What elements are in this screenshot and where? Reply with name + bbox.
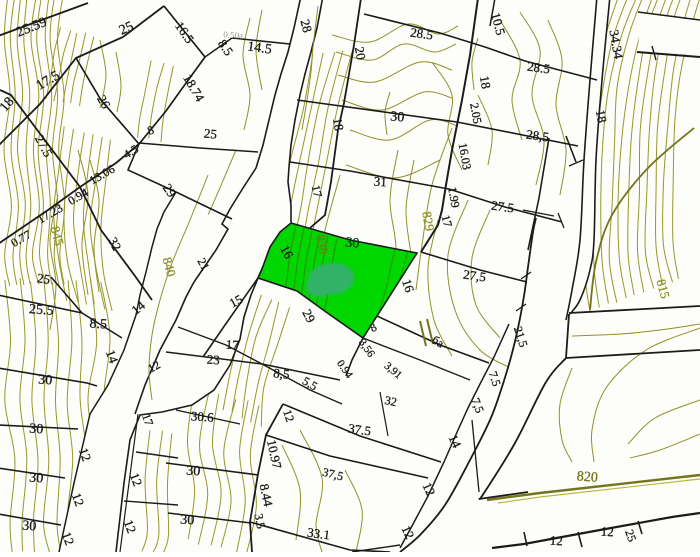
svg-text:27,5: 27,5	[462, 267, 487, 285]
svg-text:27.5: 27.5	[490, 198, 515, 216]
svg-text:18: 18	[477, 75, 494, 90]
svg-text:18: 18	[593, 109, 610, 124]
svg-text:25: 25	[36, 270, 51, 287]
svg-text:31: 31	[373, 174, 387, 190]
svg-text:23: 23	[206, 352, 220, 368]
svg-text:820: 820	[576, 469, 598, 486]
svg-text:18: 18	[330, 117, 347, 132]
svg-text:33.1: 33.1	[306, 525, 331, 543]
svg-text:30: 30	[29, 422, 44, 438]
svg-text:20: 20	[352, 46, 369, 61]
svg-text:30: 30	[345, 235, 360, 251]
svg-text:30: 30	[390, 109, 405, 125]
svg-text:28.5: 28.5	[526, 59, 551, 77]
svg-text:30: 30	[38, 373, 53, 389]
svg-text:8.5: 8.5	[89, 316, 108, 332]
svg-text:37.5: 37.5	[347, 421, 372, 439]
svg-text:30: 30	[29, 471, 44, 487]
svg-text:30: 30	[180, 513, 195, 529]
svg-text:28.5: 28.5	[409, 25, 434, 43]
svg-text:30: 30	[186, 464, 201, 480]
svg-text:17: 17	[225, 337, 240, 353]
svg-text:30: 30	[22, 519, 37, 535]
svg-text:12: 12	[600, 524, 614, 540]
svg-text:25: 25	[203, 125, 217, 141]
svg-text:28,5: 28,5	[525, 127, 550, 145]
svg-text:25.5: 25.5	[29, 302, 54, 319]
svg-text:8,5: 8,5	[273, 365, 291, 382]
svg-text:30.6: 30.6	[190, 408, 214, 425]
svg-text:12: 12	[549, 533, 563, 549]
